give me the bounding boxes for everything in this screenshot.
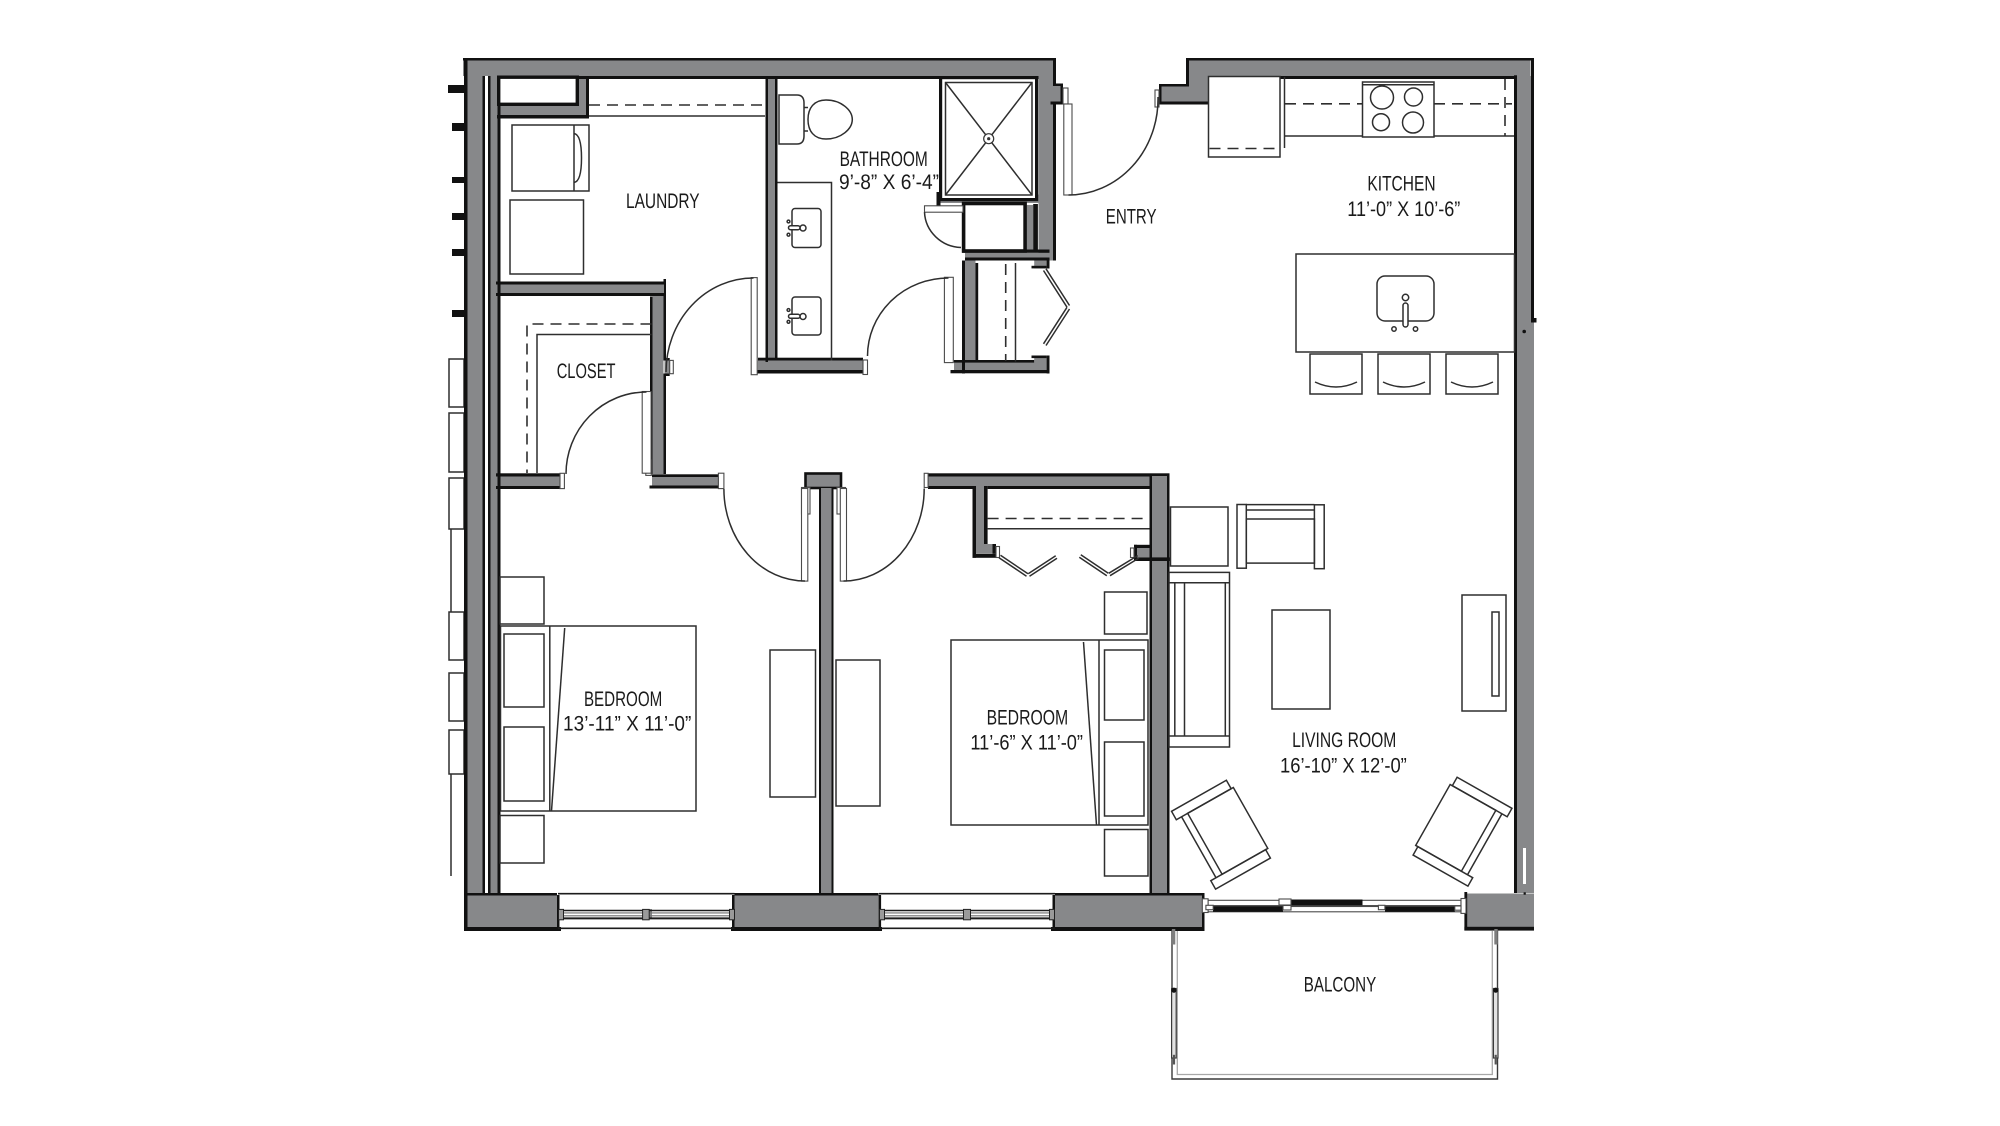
svg-text:KITCHEN: KITCHEN <box>1367 173 1435 196</box>
svg-text:LIVING ROOM: LIVING ROOM <box>1292 729 1396 752</box>
svg-text:CLOSET: CLOSET <box>557 360 616 383</box>
svg-text:11’-0” X 10’-6”: 11’-0” X 10’-6” <box>1347 198 1460 221</box>
svg-text:ENTRY: ENTRY <box>1106 206 1157 229</box>
svg-text:BATHROOM: BATHROOM <box>840 148 928 171</box>
svg-text:BALCONY: BALCONY <box>1304 973 1377 996</box>
svg-text:LAUNDRY: LAUNDRY <box>626 190 700 213</box>
svg-text:BEDROOM: BEDROOM <box>584 688 662 711</box>
svg-text:BEDROOM: BEDROOM <box>987 706 1069 729</box>
svg-text:13’-11” X 11’-0”: 13’-11” X 11’-0” <box>563 713 691 736</box>
svg-text:11’-6” X 11’-0”: 11’-6” X 11’-0” <box>970 732 1083 755</box>
svg-text:16’-10” X 12’-0”: 16’-10” X 12’-0” <box>1280 755 1407 778</box>
svg-text:9’-8” X 6’-4”: 9’-8” X 6’-4” <box>839 171 939 194</box>
